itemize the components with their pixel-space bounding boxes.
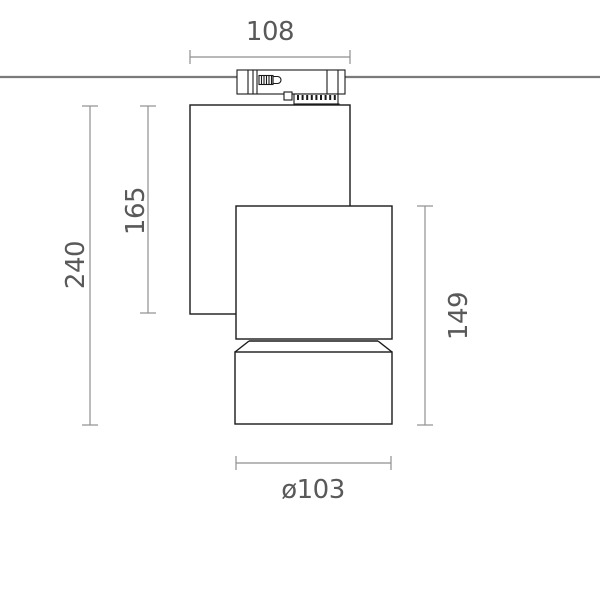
spotlight-dimension-drawing: 108 (0, 0, 600, 600)
dimension-bottom-diameter: ø103 (236, 456, 391, 505)
dimension-body-height: 165 (121, 106, 156, 313)
fixture-head (236, 206, 392, 339)
dial-teeth (298, 95, 335, 100)
dimension-overall-height: 240 (61, 106, 98, 425)
head-flare-cone (235, 341, 392, 352)
cone-left-edge (235, 341, 249, 352)
dimension-label-head-height: 149 (444, 292, 474, 340)
dimension-label-body-height: 165 (121, 187, 151, 235)
adapter-latch (284, 92, 292, 100)
trim-ring (235, 352, 392, 424)
dimension-head-height: 149 (417, 206, 474, 425)
dimension-label-overall-height: 240 (61, 241, 91, 289)
dimension-top-width: 108 (190, 17, 350, 64)
dimension-label-bottom-diameter: ø103 (281, 475, 345, 505)
dimension-label-top-width: 108 (246, 17, 294, 47)
technical-drawing-canvas: 108 (0, 0, 600, 600)
cone-right-edge (378, 341, 392, 352)
